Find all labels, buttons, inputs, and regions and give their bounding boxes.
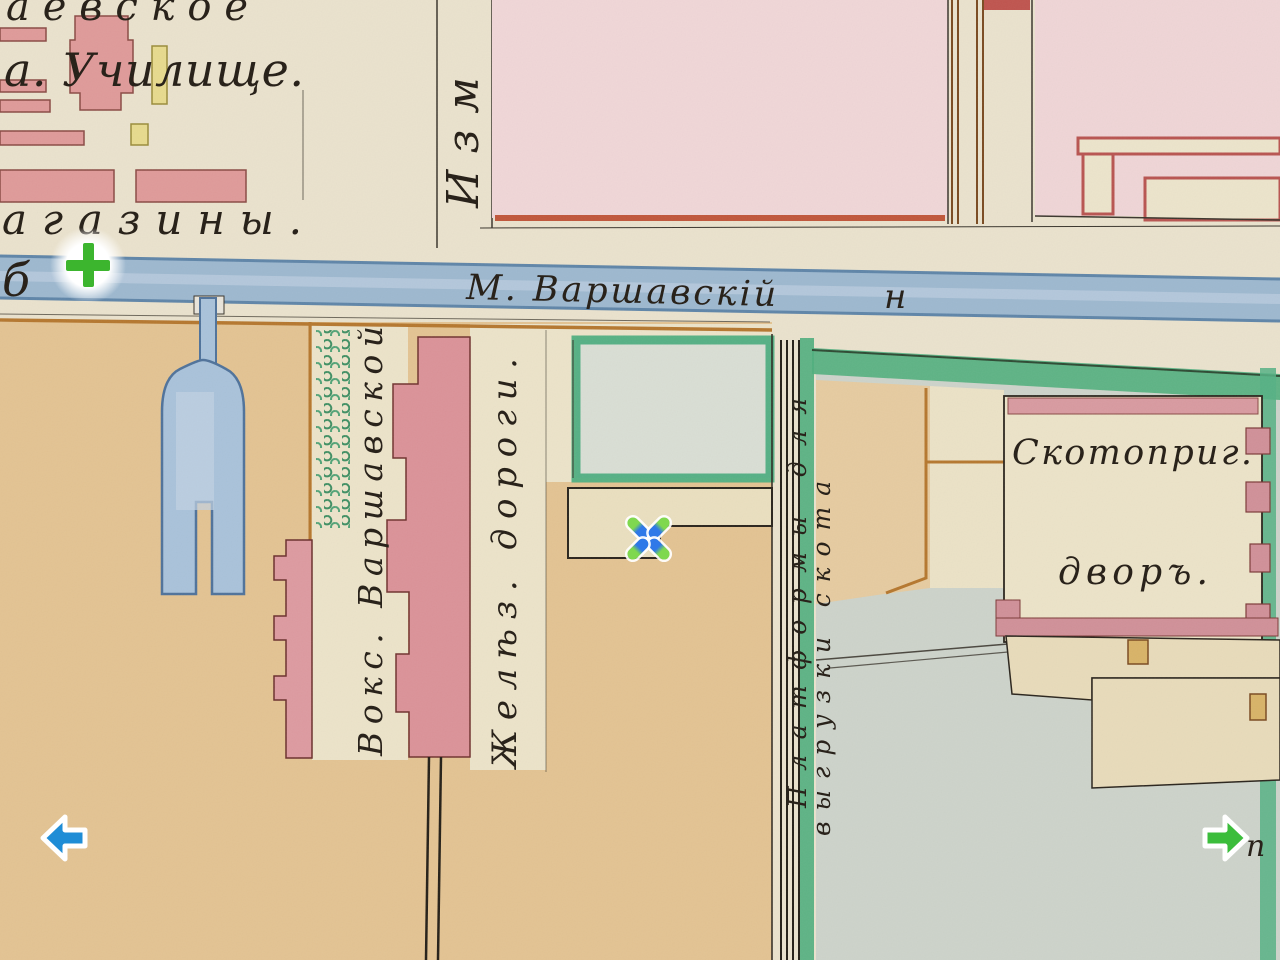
paper-texture <box>0 0 1280 960</box>
arrow-right-icon <box>1199 810 1255 866</box>
x-marker-icon <box>625 515 650 540</box>
x-marker-icon <box>625 536 650 561</box>
location-marker[interactable] <box>624 514 672 562</box>
zoom-in-button[interactable] <box>50 227 126 303</box>
historical-map-image: аевское а. Училище. агазины. Изм б М. Ва… <box>0 0 1280 960</box>
plus-icon <box>83 243 94 287</box>
arrow-left-icon <box>35 810 91 866</box>
pan-right-button[interactable] <box>1199 810 1255 866</box>
x-marker-icon <box>646 515 671 540</box>
map-viewport[interactable]: аевское а. Училище. агазины. Изм б М. Ва… <box>0 0 1280 960</box>
x-marker-icon <box>646 536 671 561</box>
pan-left-button[interactable] <box>35 810 91 866</box>
